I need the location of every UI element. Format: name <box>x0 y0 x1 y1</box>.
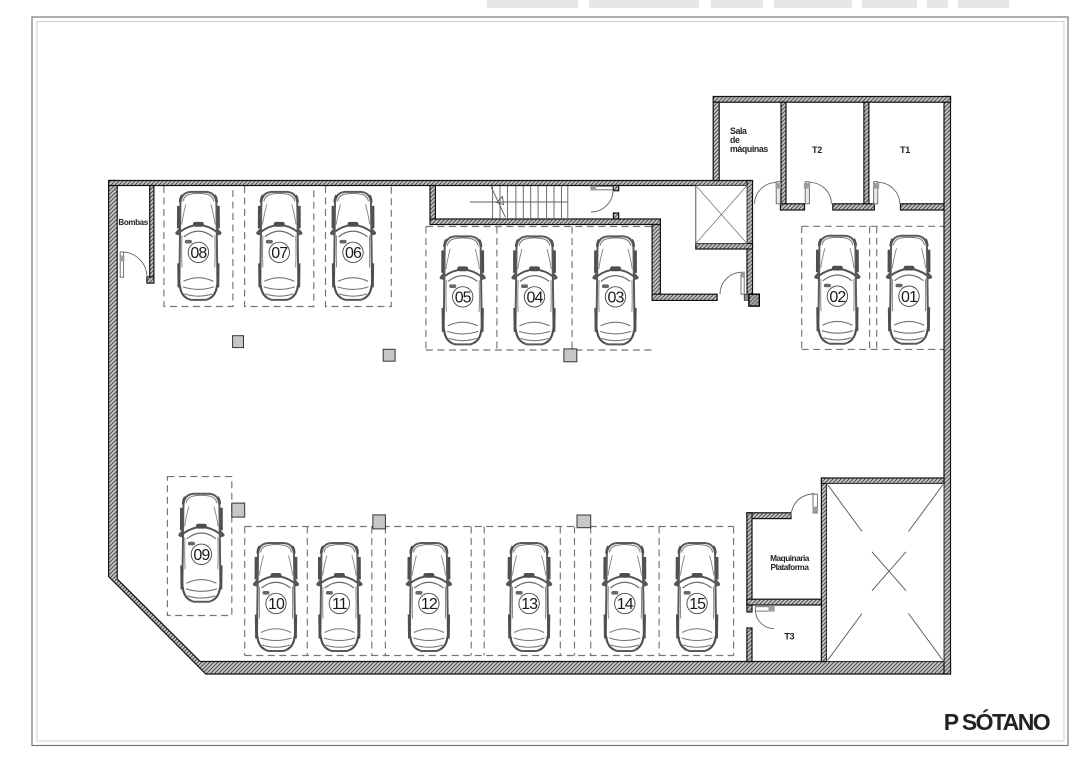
svg-text:P SÓTANO: P SÓTANO <box>944 708 1050 735</box>
svg-text:Plataforma: Plataforma <box>771 562 810 572</box>
svg-text:10: 10 <box>268 596 285 613</box>
svg-text:T3: T3 <box>784 632 794 642</box>
svg-text:14: 14 <box>617 596 634 613</box>
svg-text:06: 06 <box>345 245 362 262</box>
svg-text:T2: T2 <box>812 145 822 155</box>
svg-text:07: 07 <box>271 245 288 262</box>
svg-text:05: 05 <box>455 290 472 307</box>
svg-text:T1: T1 <box>900 145 910 155</box>
svg-text:Bombas: Bombas <box>118 218 148 227</box>
svg-text:08: 08 <box>190 245 207 262</box>
svg-text:03: 03 <box>608 290 625 307</box>
svg-text:13: 13 <box>521 596 538 613</box>
svg-text:15: 15 <box>689 596 706 613</box>
svg-text:01: 01 <box>901 289 918 306</box>
svg-text:11: 11 <box>332 596 348 613</box>
svg-text:12: 12 <box>421 596 438 613</box>
svg-text:máquinas: máquinas <box>730 144 768 154</box>
svg-text:02: 02 <box>829 289 846 306</box>
svg-text:04: 04 <box>527 290 544 307</box>
svg-text:09: 09 <box>193 547 210 564</box>
